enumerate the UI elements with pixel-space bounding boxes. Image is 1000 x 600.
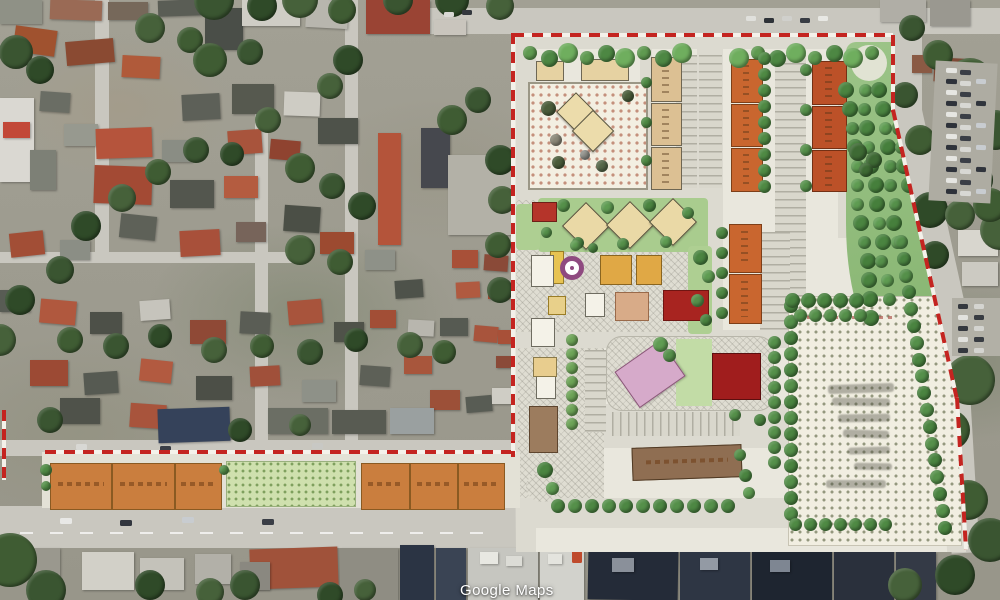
- plan-boundary-dashed-line: [2, 410, 6, 480]
- plan-boundary-dashed-line: [511, 33, 515, 457]
- plan-boundary-dashed-line: [45, 450, 516, 454]
- plan-boundary-dashed-line: [891, 35, 895, 112]
- map-canvas[interactable]: Google Maps: [0, 0, 1000, 600]
- plan-boundary-layer: [0, 0, 1000, 600]
- google-maps-watermark[interactable]: Google Maps: [460, 582, 554, 599]
- plan-boundary-dashed-line: [955, 398, 968, 550]
- plan-boundary-dashed-line: [891, 109, 959, 401]
- plan-boundary-dashed-line: [513, 33, 893, 37]
